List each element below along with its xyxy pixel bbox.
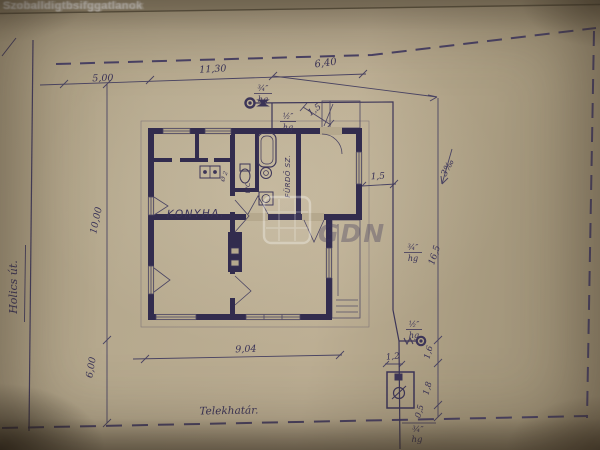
- floorplan-drawing: 5,00 11,30 6,40 10,00 6,00 9,04 16,5 1,5…: [0, 0, 600, 450]
- gdn-logo-watermark: GDN: [264, 197, 386, 248]
- pipe-street-material: hg: [412, 435, 423, 445]
- pit-valve-icon: [395, 374, 402, 380]
- dim-top-left: 5,00: [92, 73, 114, 85]
- dim-top-right: 6,40: [314, 56, 338, 70]
- dim-left-upper: 10,00: [88, 206, 104, 235]
- dim-to-boundary: 0,5: [413, 404, 426, 420]
- pipe-tap-size: ½″: [409, 320, 420, 329]
- street-name-label: Holics út.: [7, 260, 20, 315]
- top-watermark-text: Szoballdigtbsifggatlanok: [3, 0, 143, 12]
- pipe-street-size: ¾″: [412, 424, 424, 435]
- pipe-main-material: hg: [258, 95, 268, 104]
- dimension-lines: [40, 70, 452, 427]
- pipe-service-material: hg: [283, 123, 293, 132]
- pipe-main-size: ¾″: [258, 84, 269, 93]
- dim-house-to-pipe: 1,5: [370, 172, 385, 183]
- dim-top-mid: 11,30: [199, 63, 227, 75]
- floorplan-photo: 5,00 11,30 6,40 10,00 6,00 9,04 16,5 1,5…: [0, 0, 600, 450]
- dim-pit-width: 1,2: [386, 351, 401, 362]
- stove-icon: [231, 260, 239, 266]
- pipe-tap-material: hg: [409, 331, 419, 340]
- room-bathroom-label: FÜRDŐ SZ.: [283, 154, 292, 197]
- dim-right-total: 16,5: [427, 244, 443, 266]
- drain-note: Ø 2: [219, 170, 230, 184]
- stove-icon: [231, 248, 239, 254]
- pipe-slope: 3‰: [440, 158, 457, 178]
- water-pipe: [246, 99, 426, 450]
- street-line: [2, 38, 33, 431]
- basin-icon: [261, 168, 272, 179]
- pipe-service-size: ½″: [283, 112, 294, 121]
- pipe-riser-material: hg: [408, 254, 418, 263]
- boundary-label: Telekhatár.: [199, 404, 258, 417]
- gdn-logo-icon: [264, 197, 310, 243]
- pipe-riser-size: ¾″: [408, 243, 419, 252]
- dim-tap-down: 1,8: [421, 380, 434, 396]
- porch: [322, 101, 360, 128]
- room-kitchen-label: KONYHA.: [167, 207, 225, 220]
- dim-left-lower: 6,00: [84, 356, 99, 379]
- room-wc-label: WC: [244, 182, 252, 193]
- dim-porch: 1,5: [306, 102, 324, 119]
- gdn-logo-text: GDN: [318, 219, 386, 248]
- dim-house-width: 9,04: [235, 344, 257, 356]
- dim-tap-up: 1,6: [422, 344, 435, 360]
